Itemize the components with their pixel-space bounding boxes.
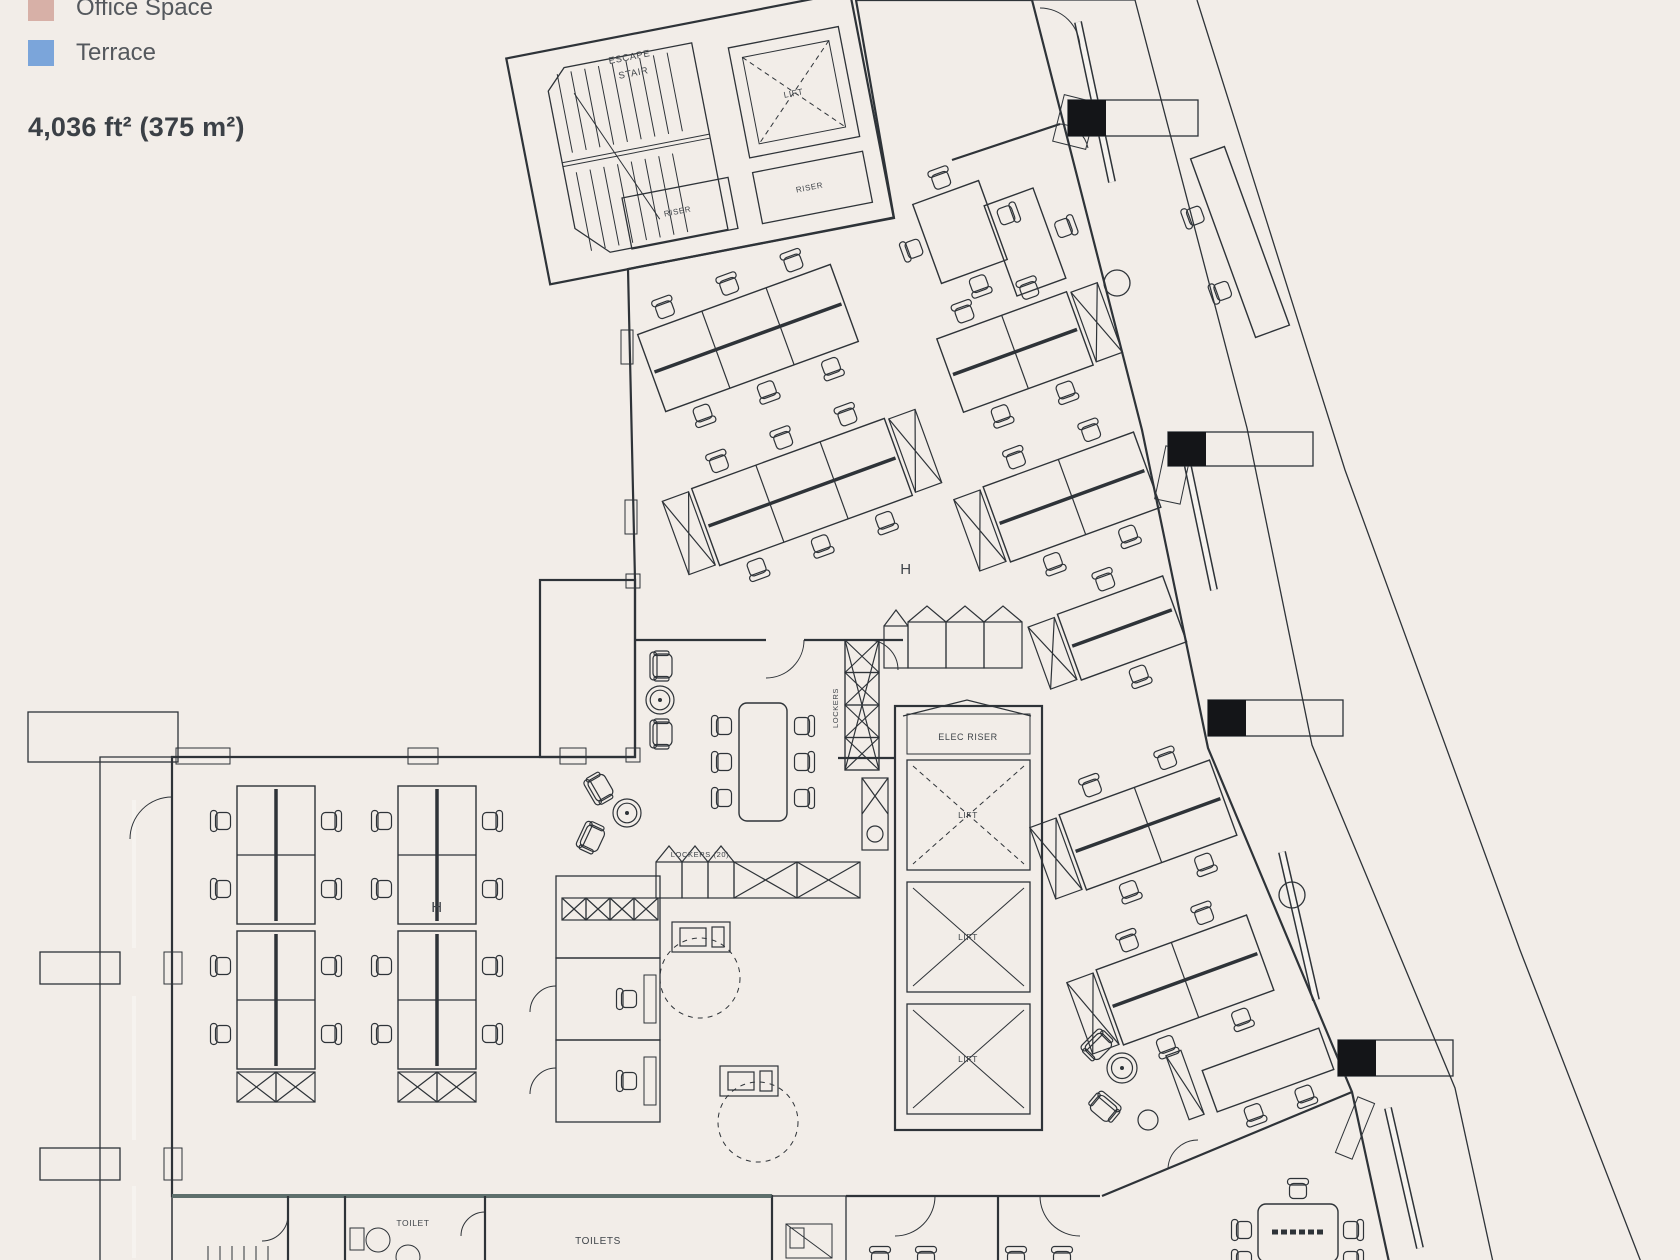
floor-plan-page: ESCAPE STAIR LIFT RISER RISER ELEC RISER… (0, 0, 1680, 1260)
toilets-label: TOILETS (575, 1236, 621, 1247)
legend-item-terrace: Terrace (28, 39, 213, 67)
legend: Office Space Terrace (28, 0, 213, 84)
lockers-label: LOCKERS (831, 688, 840, 728)
office-space-swatch (28, 0, 54, 21)
floor-plan-svg: ESCAPE STAIR LIFT RISER RISER ELEC RISER… (0, 0, 1680, 1260)
round-table (613, 799, 641, 827)
legend-label: Office Space (76, 0, 213, 22)
lockers-20-label: LOCKERS (20) (671, 850, 729, 859)
section-marker: H (431, 899, 442, 916)
section-marker: H (900, 561, 911, 578)
legend-label: Terrace (76, 39, 156, 67)
round-table (1107, 1053, 1137, 1083)
lift-label: LIFT (958, 1054, 978, 1064)
lift-label: LIFT (958, 932, 978, 942)
plan-background (0, 0, 1680, 1260)
elec-riser-label: ELEC RISER (938, 732, 998, 742)
toilet-label: TOILET (396, 1218, 429, 1228)
legend-item-office: Office Space (28, 0, 213, 22)
round-table (646, 686, 674, 714)
lift-label: LIFT (958, 810, 978, 820)
terrace-swatch (28, 40, 54, 66)
area-label: 4,036 ft² (375 m²) (28, 112, 245, 143)
